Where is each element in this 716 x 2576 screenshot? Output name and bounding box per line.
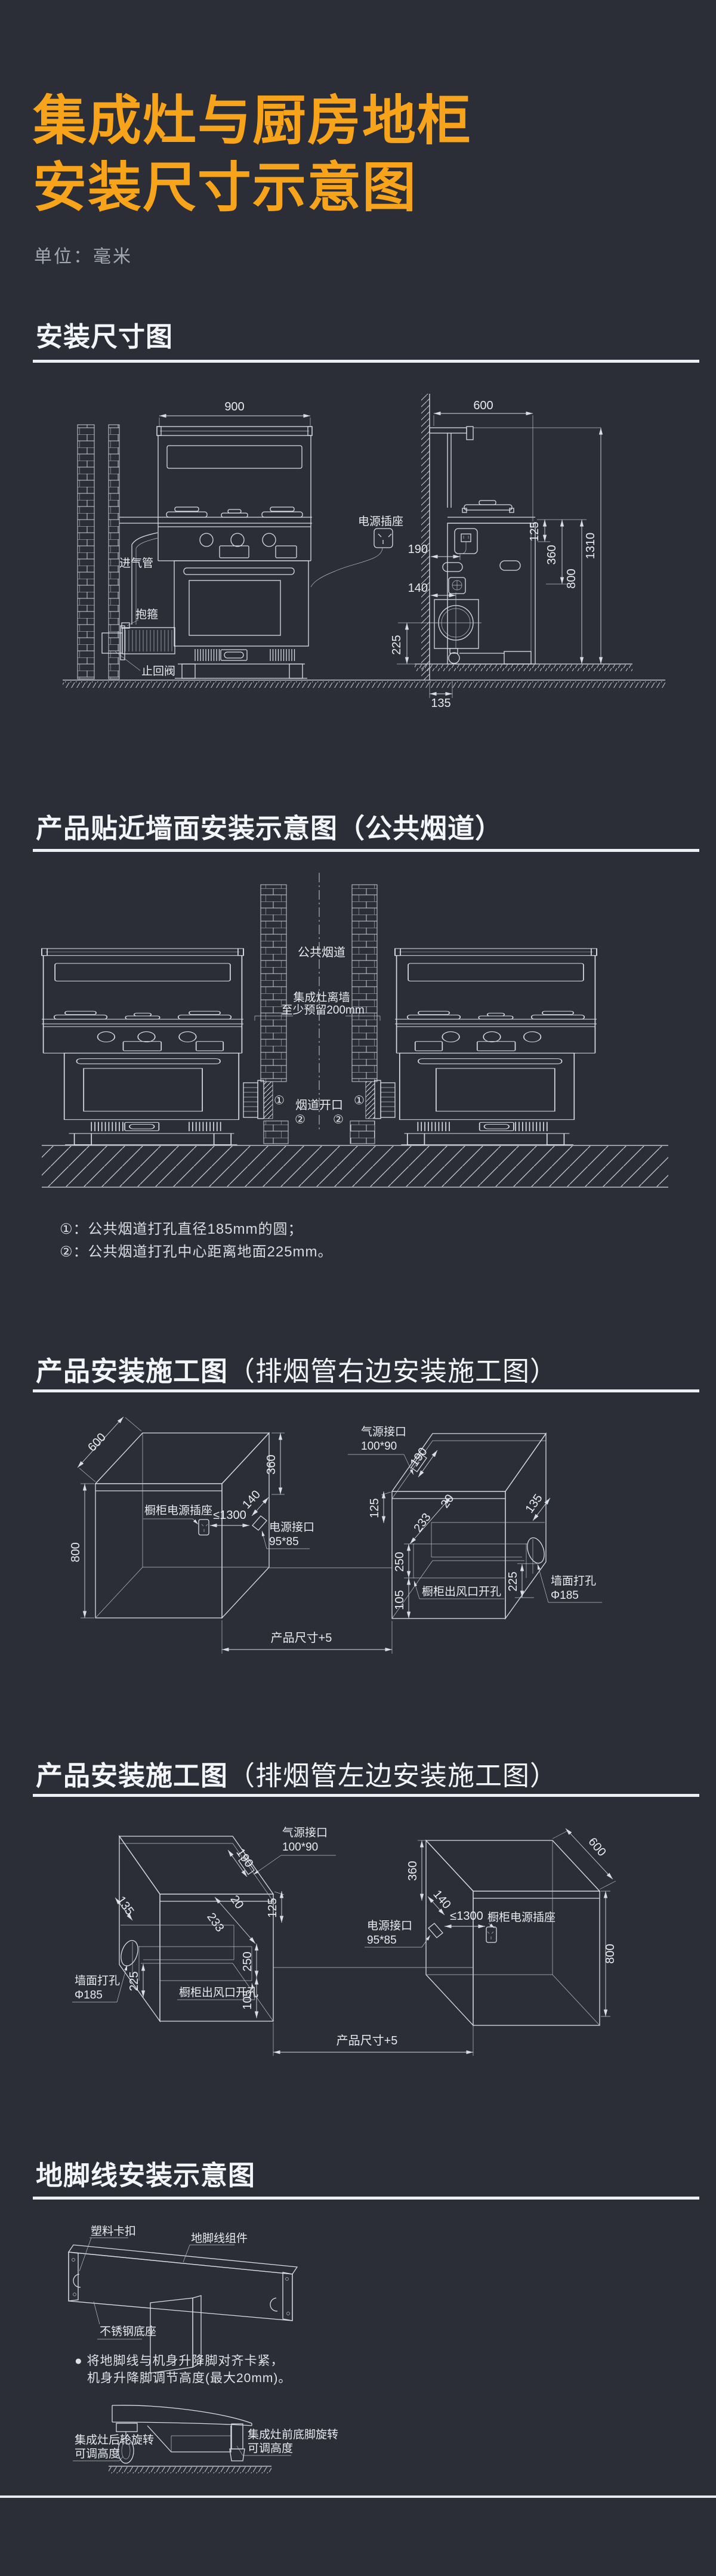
wall-hatch [421, 394, 430, 680]
s4-dim-250: 250 [241, 1951, 254, 1971]
s4-dim-190: 190 [233, 1846, 255, 1870]
page-title-line1: 集成灶与厨房地柜 [33, 94, 472, 148]
s4-wall-hole-label-2: Φ185 [75, 1989, 103, 2002]
plastic-clip-left [73, 2274, 81, 2287]
s3-dim-360: 360 [265, 1454, 278, 1474]
page-title-line2: 安装尺寸示意图 [33, 161, 417, 215]
s3-dim-225: 225 [507, 1571, 520, 1591]
brick-flue-column [352, 885, 377, 1082]
diagram-baseboard: 塑料卡扣 地脚线组件 不锈钢底座 集成灶后轮旋转 可调高度 集成灶前底脚旋转 可… [33, 2207, 695, 2488]
s4-dim-600: 600 [585, 1835, 608, 1859]
baseboard-note-line2: 机身升降脚调节高度(最大20mm)。 [87, 2368, 291, 2386]
integrated-stove-front [157, 427, 312, 678]
section2-divider [33, 849, 699, 852]
caster-bracket [116, 2423, 137, 2432]
section4-heading-sub: （排烟管左边安装施工图） [228, 1760, 557, 1791]
bottom-divider [0, 2495, 716, 2498]
mark-1-right: ① [354, 1094, 365, 1107]
front-foot-label-1: 集成灶前底脚旋转 [248, 2428, 338, 2441]
s3-dim-800: 800 [69, 1542, 82, 1562]
s4-dim-233: 233 [204, 1911, 226, 1935]
s4-dim-125: 125 [266, 1898, 279, 1917]
power-socket-icon [374, 529, 393, 548]
diagram-duct-right: 600 800 360 140 ≤1300 橱柜电源插座 电源接口 95*85 … [33, 1408, 695, 1688]
mark-2-right: ② [333, 1113, 344, 1126]
hood-duct [447, 433, 451, 508]
s3-dim-105: 105 [393, 1590, 406, 1610]
s3-gas-label-2: 100*90 [361, 1440, 397, 1453]
flue-connection-right [350, 1080, 395, 1144]
flue-note-2: ②：公共烟道打孔中心距离地面225mm。 [60, 1240, 333, 1261]
s4-dim-140: 140 [430, 1888, 453, 1911]
floor-hatch [42, 1146, 668, 1187]
diagram-install-dimensions: 900 进气管 抱箍 止回阀 电源插座 [33, 382, 695, 728]
s4-dim-225: 225 [128, 1971, 141, 1991]
s1-dim-125: 125 [528, 521, 541, 541]
s1-dim-135: 135 [431, 697, 450, 710]
s3-dim-250: 250 [393, 1552, 406, 1571]
s4-product-dim: 产品尺寸+5 [337, 2034, 398, 2047]
unit-note: 单位：毫米 [34, 242, 132, 268]
s4-power-port-label-1: 电源接口 [367, 1919, 412, 1932]
stove-left [42, 949, 243, 1145]
gas-pipe-label: 进气管 [119, 557, 153, 570]
section3-divider [33, 1389, 699, 1392]
section1-divider [33, 360, 699, 363]
steel-base-label: 不锈钢底座 [100, 2325, 156, 2338]
ground-hatch [63, 681, 665, 688]
section4-divider [33, 1794, 699, 1797]
s1-dim-360: 360 [545, 545, 558, 564]
power-socket-label: 电源插座 [358, 515, 403, 528]
s4-gas-label-1: 气源接口 [282, 1826, 328, 1839]
s3-dim-125: 125 [368, 1498, 381, 1518]
s3-wall-hole-label-1: 墙面打孔 [551, 1574, 596, 1587]
s1-dim-140: 140 [408, 582, 428, 595]
s3-gas-label-1: 气源接口 [361, 1425, 406, 1438]
stove-right [395, 949, 597, 1145]
assembly-label: 地脚线组件 [191, 2232, 248, 2245]
handle-slot [500, 561, 520, 570]
s1-dim-1310: 1310 [584, 533, 597, 560]
s4-gas-label-2: 100*90 [282, 1841, 318, 1854]
cabinet-box [426, 1840, 600, 2025]
front-foot-label-2: 可调高度 [248, 2442, 293, 2455]
section3-heading-sub: （排烟管右边安装施工图） [228, 1356, 557, 1386]
wall-gap-label-1: 集成灶离墙 [293, 991, 350, 1004]
brick-flue-column [78, 425, 94, 679]
s3-power-port-label-1: 电源接口 [269, 1521, 314, 1534]
s3-socket-label: 橱柜电源插座 [144, 1504, 212, 1517]
rear-wheel-label-2: 可调高度 [75, 2447, 120, 2460]
side-view: 600 1310 800 360 125 190 140 225 [390, 394, 632, 710]
section5-heading: 地脚线安装示意图 [36, 2162, 255, 2189]
bullet-dot: ● [75, 2354, 83, 2368]
s3-dim-600: 600 [85, 1431, 109, 1454]
s4-dim-135: 135 [114, 1894, 136, 1918]
section5-divider [33, 2197, 699, 2200]
plastic-clip-right [270, 2298, 277, 2311]
s4-socket-label: 橱柜电源插座 [487, 1911, 555, 1924]
s3-dim-233: 233 [412, 1511, 434, 1535]
s1-dim-190: 190 [408, 543, 428, 556]
wall-gap-label-2: 至少预留200mm [281, 1003, 364, 1017]
rear-wheel-label-1: 集成灶后轮旋转 [75, 2433, 154, 2447]
s4-dim-360: 360 [406, 1861, 419, 1880]
hood-top-bracket [430, 428, 467, 433]
s3-dim-135: 135 [523, 1492, 545, 1516]
section2-heading: 产品贴近墙面安装示意图（公共烟道） [36, 815, 502, 842]
s3-product-dim: 产品尺寸+5 [271, 1631, 332, 1645]
flue-outlet-box [434, 600, 479, 648]
s4-dim-20: 20 [228, 1893, 246, 1911]
baseboard-note-1: 将地脚线与机身升降脚对齐卡紧， [87, 2354, 284, 2368]
flue-label: 公共烟道 [298, 946, 345, 959]
baseboard-note-line1: ● 将地脚线与机身升降脚对齐卡紧， [75, 2351, 284, 2369]
s1-dim-800: 800 [565, 569, 578, 588]
section1-heading: 安装尺寸图 [36, 323, 173, 350]
s4-power-port-label-2: 95*85 [367, 1934, 397, 1947]
plastic-clip-label: 塑料卡扣 [91, 2225, 136, 2238]
handle-slot [443, 563, 462, 572]
check-valve-label: 止回阀 [141, 665, 175, 678]
countertop [447, 517, 535, 523]
section3-heading: 产品安装施工图（排烟管右边安装施工图） [36, 1358, 557, 1385]
s4-dim-800: 800 [604, 1944, 617, 1963]
brick-flue-column [261, 885, 286, 1082]
s1-dim-225: 225 [390, 635, 403, 654]
s3-wall-hole-label-2: Φ185 [551, 1589, 579, 1602]
s1-dim-600: 600 [473, 399, 493, 412]
flue-opening-label: 烟道开口 [295, 1098, 343, 1112]
mark-2-left: ② [295, 1113, 305, 1126]
s3-dim-1300: ≤1300 [213, 1509, 246, 1522]
diagram-wall-flue: 公共烟道 集成灶离墙 至少预留200mm ① ① ② ② 烟道开口 [33, 862, 695, 1196]
diagram-duct-left: 气源接口 100*90 190 125 20 233 250 105 135 2… [33, 1808, 695, 2076]
s1-dim-900: 900 [224, 400, 244, 413]
page: 集成灶与厨房地柜 安装尺寸示意图 单位：毫米 安装尺寸图 900 进气管 抱箍 … [0, 0, 716, 2576]
clamp-label: 抱箍 [135, 608, 158, 621]
exhaust-duct [122, 628, 175, 654]
front-foot-column [232, 2424, 243, 2449]
s4-outlet-label: 橱柜出风口开孔 [179, 1986, 258, 1999]
s4-wall-hole-label-1: 墙面打孔 [75, 1974, 120, 1987]
burner-profile [464, 505, 512, 510]
flue-connection-left [243, 1080, 288, 1144]
s3-dim-140: 140 [240, 1488, 263, 1511]
s3-power-port-label-2: 95*85 [269, 1536, 299, 1548]
brick-flue-column [109, 425, 119, 679]
mark-1-left: ① [274, 1094, 285, 1107]
s4-dim-1300: ≤1300 [450, 1910, 483, 1923]
front-view: 900 进气管 抱箍 止回阀 电源插座 [63, 400, 665, 688]
section4-heading-main: 产品安装施工图 [36, 1760, 228, 1791]
s3-outlet-label: 橱柜出风口开孔 [422, 1585, 501, 1598]
section3-heading-main: 产品安装施工图 [36, 1356, 228, 1386]
section4-heading: 产品安装施工图（排烟管左边安装施工图） [36, 1762, 557, 1789]
flue-note-1: ①：公共烟道打孔直径185mm的圆； [60, 1217, 303, 1238]
